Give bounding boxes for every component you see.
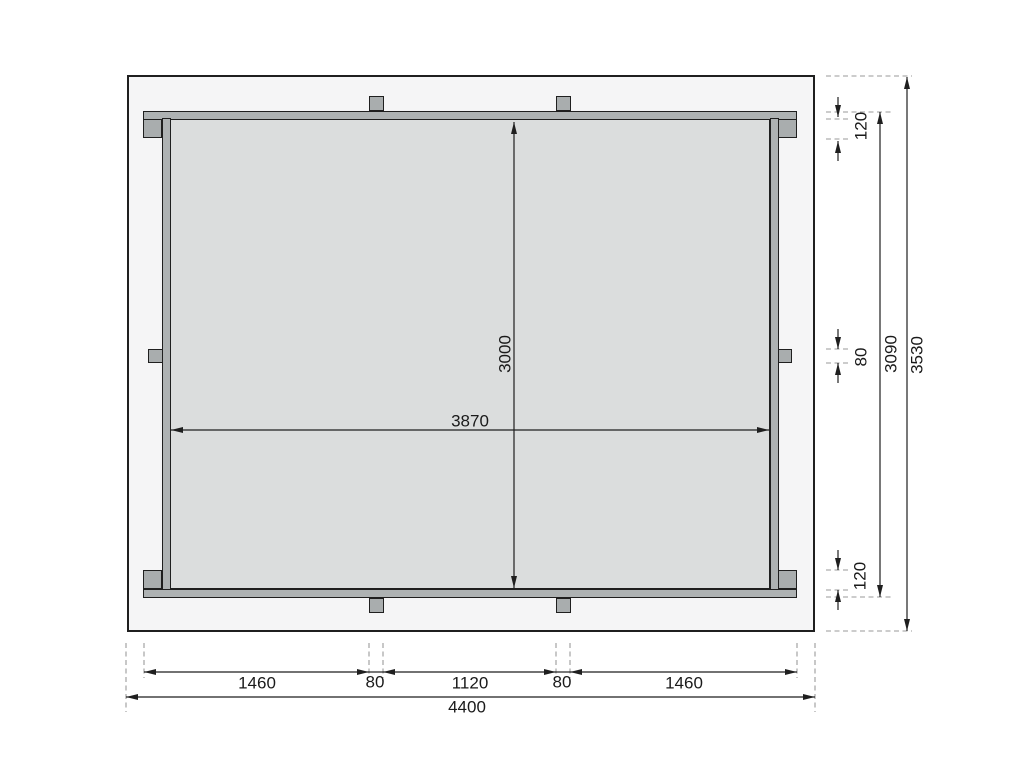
mid-post-left (148, 349, 163, 363)
dim-label-right-mid: 80 (853, 348, 870, 367)
corner-post-top-left (143, 119, 162, 138)
left-beam (162, 118, 171, 590)
dim-label-right-top: 120 (853, 112, 870, 140)
dim-label-right-bottom: 120 (852, 562, 869, 590)
dim-label-bottom-80-right: 80 (553, 674, 572, 691)
dim-label-inner-width: 3870 (451, 413, 489, 430)
dim-label-bottom-1460-left: 1460 (238, 675, 276, 692)
floor-panel (170, 118, 770, 589)
mid-post-top-right (556, 96, 571, 111)
corner-post-top-right (778, 119, 797, 138)
corner-post-bottom-right (778, 570, 797, 589)
mid-post-right (778, 349, 792, 363)
bottom-beam (143, 589, 797, 598)
mid-post-bottom-right (556, 598, 571, 613)
mid-post-bottom-left (369, 598, 384, 613)
mid-post-top-left (369, 96, 384, 111)
top-beam (143, 111, 797, 120)
corner-post-bottom-left (143, 570, 162, 589)
dim-label-bottom-80-left: 80 (366, 674, 385, 691)
dim-label-bottom-1120: 1120 (452, 675, 489, 692)
dim-label-inner-depth: 3000 (497, 335, 514, 373)
plan-canvas: 3000 3870 120 80 120 3090 3530 1460 80 1… (0, 0, 1024, 768)
dim-label-bottom-1460-right: 1460 (665, 675, 703, 692)
dim-label-frame-depth: 3090 (883, 335, 900, 373)
dim-label-overall-width: 4400 (448, 699, 486, 716)
dim-label-overall-depth: 3530 (909, 336, 926, 374)
